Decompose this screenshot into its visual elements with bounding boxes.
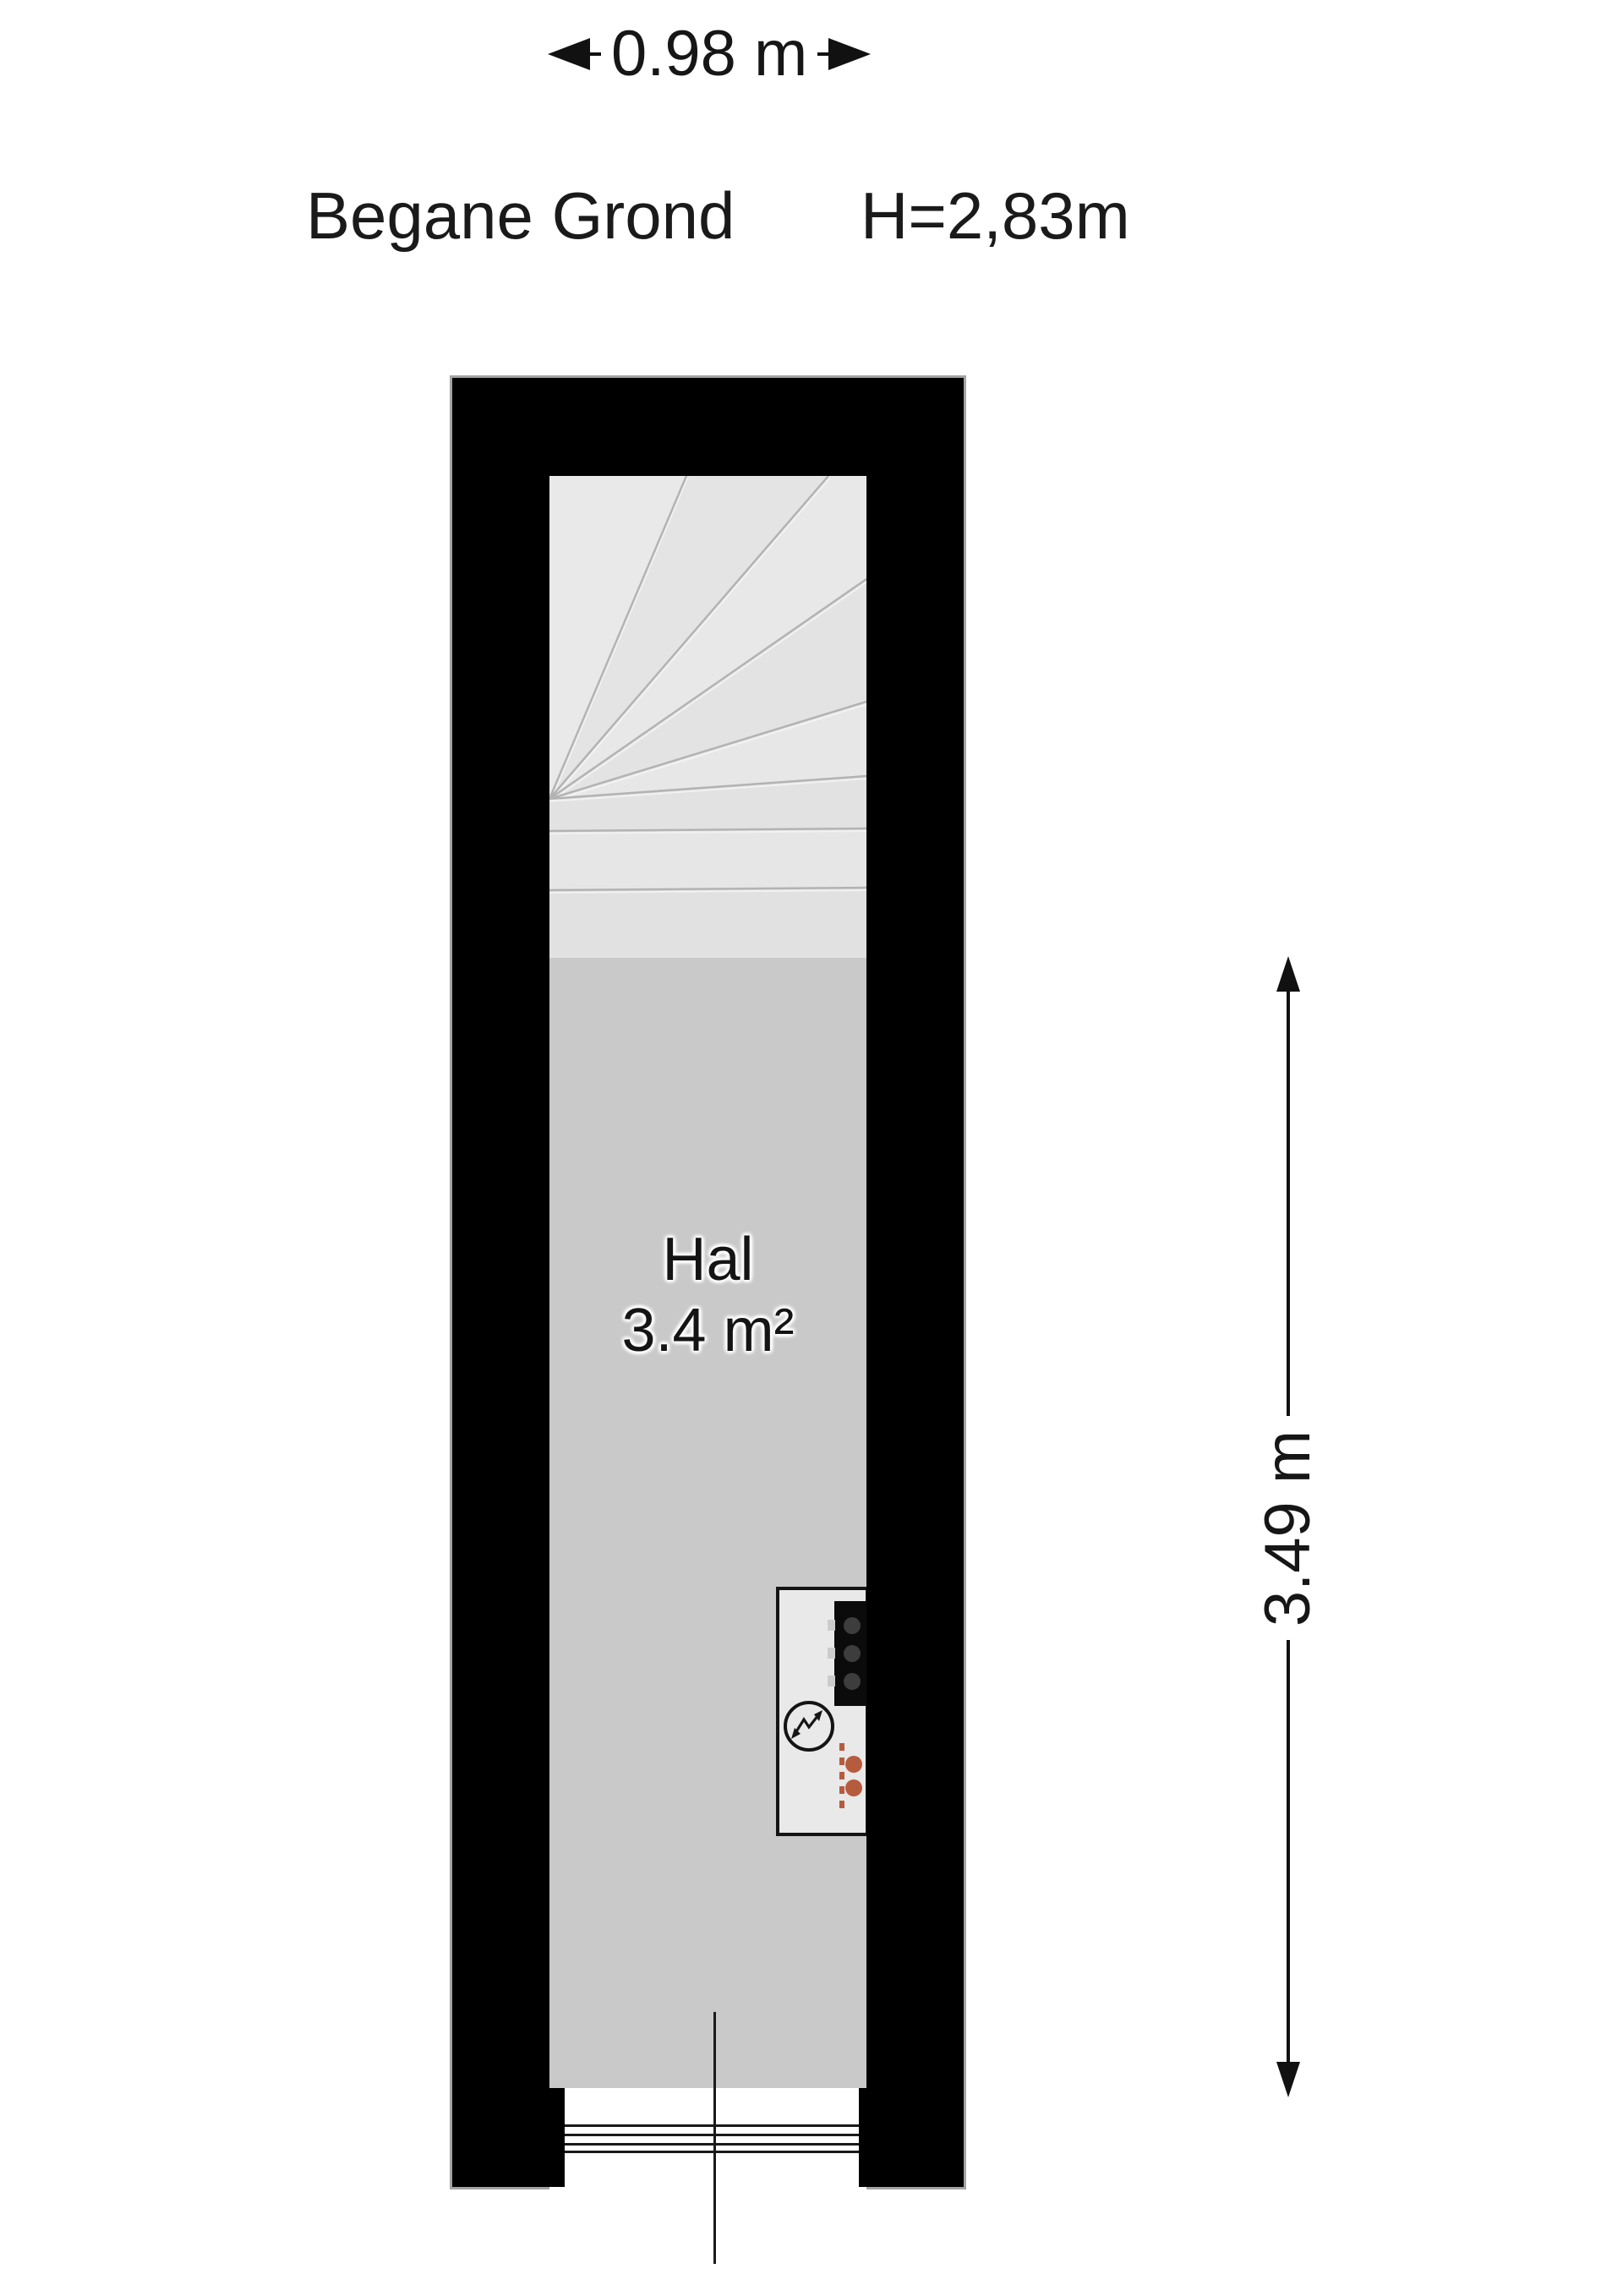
wall-right	[866, 378, 964, 2187]
fuse-dot	[844, 1673, 861, 1690]
door-opening	[549, 2088, 866, 2193]
fuse-stub	[828, 1648, 835, 1659]
room-area: 3.4 m²	[549, 1295, 866, 1366]
room-label: Hal 3.4 m²	[549, 1224, 866, 1366]
width-dimension: 0.98 m	[548, 20, 871, 88]
fuse-stub	[828, 1620, 835, 1631]
floor-plan-page: { "header": { "floor_name": "Begane Gron…	[0, 0, 1623, 2296]
dimension-line	[1287, 1640, 1290, 2062]
dimension-line	[1287, 992, 1290, 1416]
threshold-line	[565, 2143, 859, 2146]
hall-floor	[549, 958, 866, 2088]
wall-left	[452, 378, 549, 2187]
arrow-tail	[817, 52, 828, 56]
fuse-stub	[828, 1676, 835, 1686]
threshold-line	[565, 2134, 859, 2136]
fuse-dot	[844, 1617, 861, 1634]
fuse-dot	[844, 1645, 861, 1662]
arrow-left-icon	[548, 38, 590, 70]
threshold-line	[565, 2151, 859, 2153]
winder-stairs-icon	[549, 476, 866, 958]
depth-dimension: 3.49 m	[1276, 956, 1300, 2097]
floor-title: Begane Grond	[306, 183, 735, 249]
arrow-up-icon	[1276, 956, 1300, 992]
lightning-bolt-icon	[787, 1704, 831, 1748]
electric-meter-icon	[784, 1701, 834, 1752]
door-center-line	[713, 2012, 716, 2264]
depth-dimension-label: 3.49 m	[1256, 1430, 1320, 1626]
staircase	[549, 476, 866, 958]
threshold-line	[565, 2124, 859, 2127]
arrow-right-icon	[828, 38, 871, 70]
arrow-tail	[590, 52, 601, 56]
arrow-down-icon	[1276, 2062, 1300, 2097]
room-name: Hal	[549, 1224, 866, 1295]
ceiling-height-label: H=2,83m	[861, 183, 1130, 249]
door-jamb-left	[549, 2088, 565, 2187]
door-jamb-right	[859, 2088, 866, 2187]
width-dimension-label: 0.98 m	[611, 22, 807, 86]
